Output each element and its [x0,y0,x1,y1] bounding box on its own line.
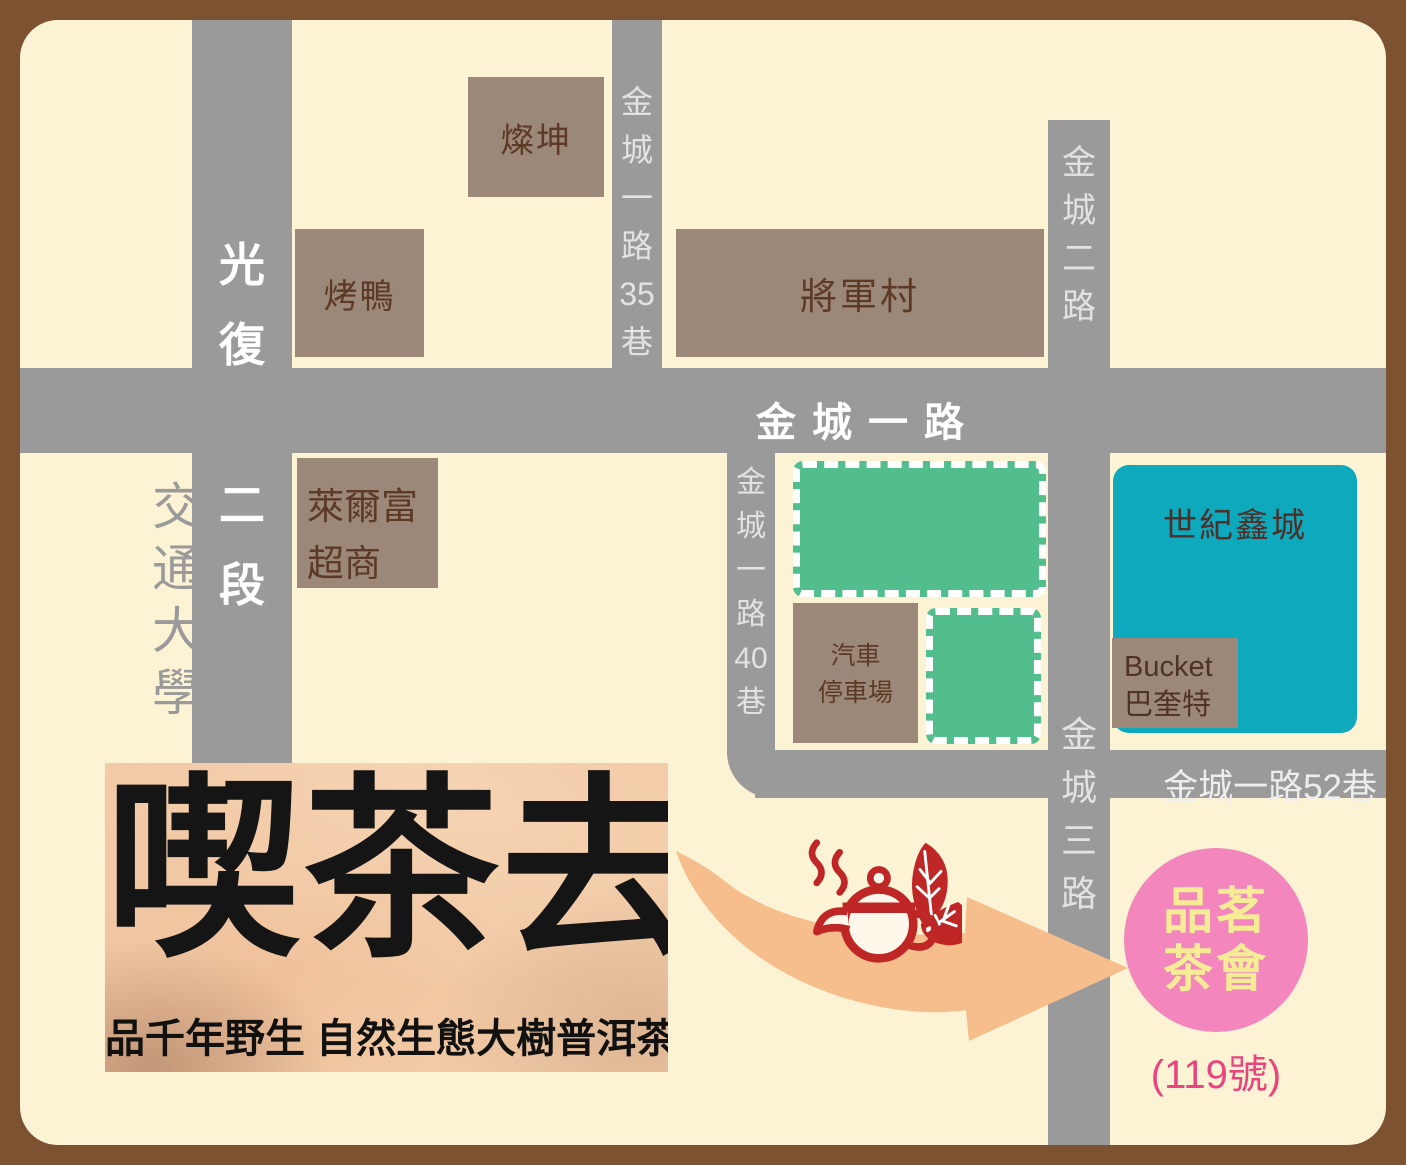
teapot-body [844,890,913,959]
map-background: 光 復 路 二 段 金 城 一 路 35 巷 金 城 二 路 [20,20,1386,1145]
destination-address-note: (119號) [1106,1042,1326,1100]
tea-event-map: 光 復 路 二 段 金 城 一 路 35 巷 金 城 二 路 [0,0,1406,1165]
teapot-spout [817,911,849,932]
destination-line2: 茶會 [1163,940,1269,998]
teapot-knob [870,870,887,887]
steaming-teapot-icon [790,835,962,969]
steam-line-icon [835,852,845,892]
destination-line1: 品茗 [1163,882,1269,940]
destination-badge: 品茗 茶會 [1124,848,1308,1032]
steam-line-icon [812,843,822,883]
